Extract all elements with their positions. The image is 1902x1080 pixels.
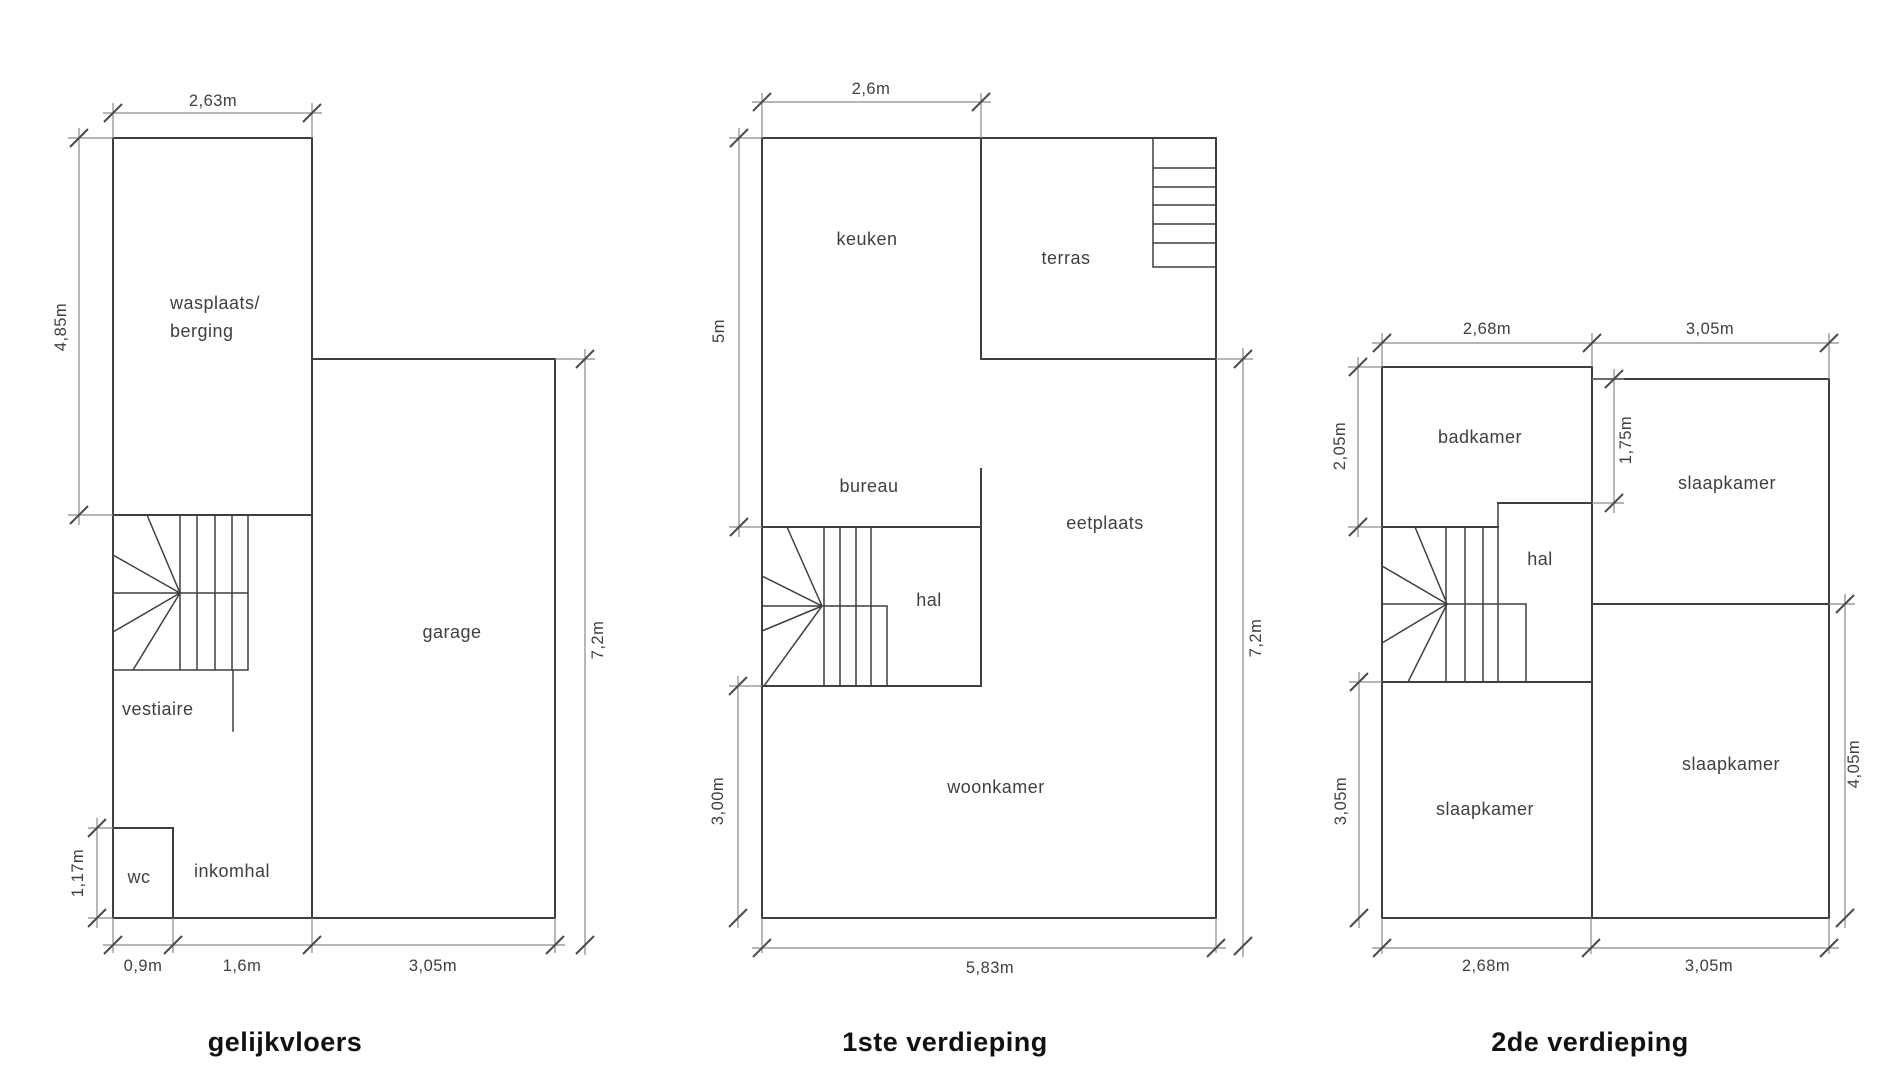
first-floor-walls [762,138,1216,918]
second-floor-walls [1382,367,1829,918]
dim-second-mid-height: 1,75m [1617,416,1635,464]
dim-second-left-upper: 2,05m [1331,422,1349,470]
room-label-berging: berging [170,321,234,341]
dim-second-top-left: 2,68m [1463,320,1511,338]
floorplan-drawing: wasplaats/ berging garage vestiaire wc i… [0,0,1902,1080]
dim-first-top-width: 2,6m [852,80,891,98]
room-label-terras: terras [1041,248,1090,268]
second-floor-dimension-lines [1348,333,1855,954]
dim-ground-bottom-3: 3,05m [409,957,457,975]
dim-ground-wc-height: 1,17m [69,849,87,897]
dim-first-right-height: 7,2m [1247,619,1265,658]
room-label-vestiaire: vestiaire [122,699,194,719]
room-label-wc: wc [127,867,151,887]
room-label-eetplaats: eetplaats [1066,513,1144,533]
room-label-woonkamer: woonkamer [946,777,1045,797]
title-ground-floor: gelijkvloers [208,1027,363,1057]
dim-first-left-lower: 3,00m [709,777,727,825]
first-floor-dimension-ticks [729,93,1252,957]
room-label-hal-second: hal [1527,549,1553,569]
room-label-badkamer: badkamer [1438,427,1522,447]
ground-floor-dimension-ticks [70,104,594,954]
title-first-floor: 1ste verdieping [842,1027,1048,1057]
room-label-slaapkamer-bottom-right: slaapkamer [1682,754,1780,774]
title-second-floor: 2de verdieping [1491,1027,1689,1057]
room-label-hal-first: hal [916,590,942,610]
room-label-keuken: keuken [836,229,897,249]
second-floor-dimension-ticks [1349,334,1854,957]
room-label-bureau: bureau [839,476,898,496]
second-floor-plan: badkamer slaapkamer hal slaapkamer slaap… [1331,320,1863,1057]
dim-ground-top-width: 2,63m [189,92,237,110]
dim-ground-left-height: 4,85m [52,303,70,351]
dim-second-bottom-left: 2,68m [1462,957,1510,975]
room-label-wasplaats: wasplaats/ [169,293,260,313]
room-label-garage: garage [422,622,481,642]
floorplan-canvas: wasplaats/ berging garage vestiaire wc i… [0,0,1902,1080]
first-floor-stairs [762,527,887,686]
ground-floor-plan: wasplaats/ berging garage vestiaire wc i… [52,92,607,1057]
dim-ground-bottom-1: 0,9m [124,957,163,975]
first-floor-plan: keuken terras bureau hal eetplaats woonk… [709,80,1265,1057]
dim-ground-right-height: 7,2m [589,621,607,660]
room-label-inkomhal: inkomhal [194,861,270,881]
room-label-slaapkamer-bottom-left: slaapkamer [1436,799,1534,819]
second-floor-stairs [1382,503,1526,682]
dim-second-top-right: 3,05m [1686,320,1734,338]
first-floor-dimension-lines [729,93,1253,957]
dim-second-right-height: 4,05m [1845,740,1863,788]
dim-second-bottom-right: 3,05m [1685,957,1733,975]
dim-first-bottom-width: 5,83m [966,959,1014,977]
dim-second-left-lower: 3,05m [1332,777,1350,825]
dim-ground-bottom-2: 1,6m [223,957,262,975]
first-floor-terrace-stairs [1153,138,1216,267]
room-label-slaapkamer-top-right: slaapkamer [1678,473,1776,493]
dim-first-left-upper: 5m [710,319,728,343]
